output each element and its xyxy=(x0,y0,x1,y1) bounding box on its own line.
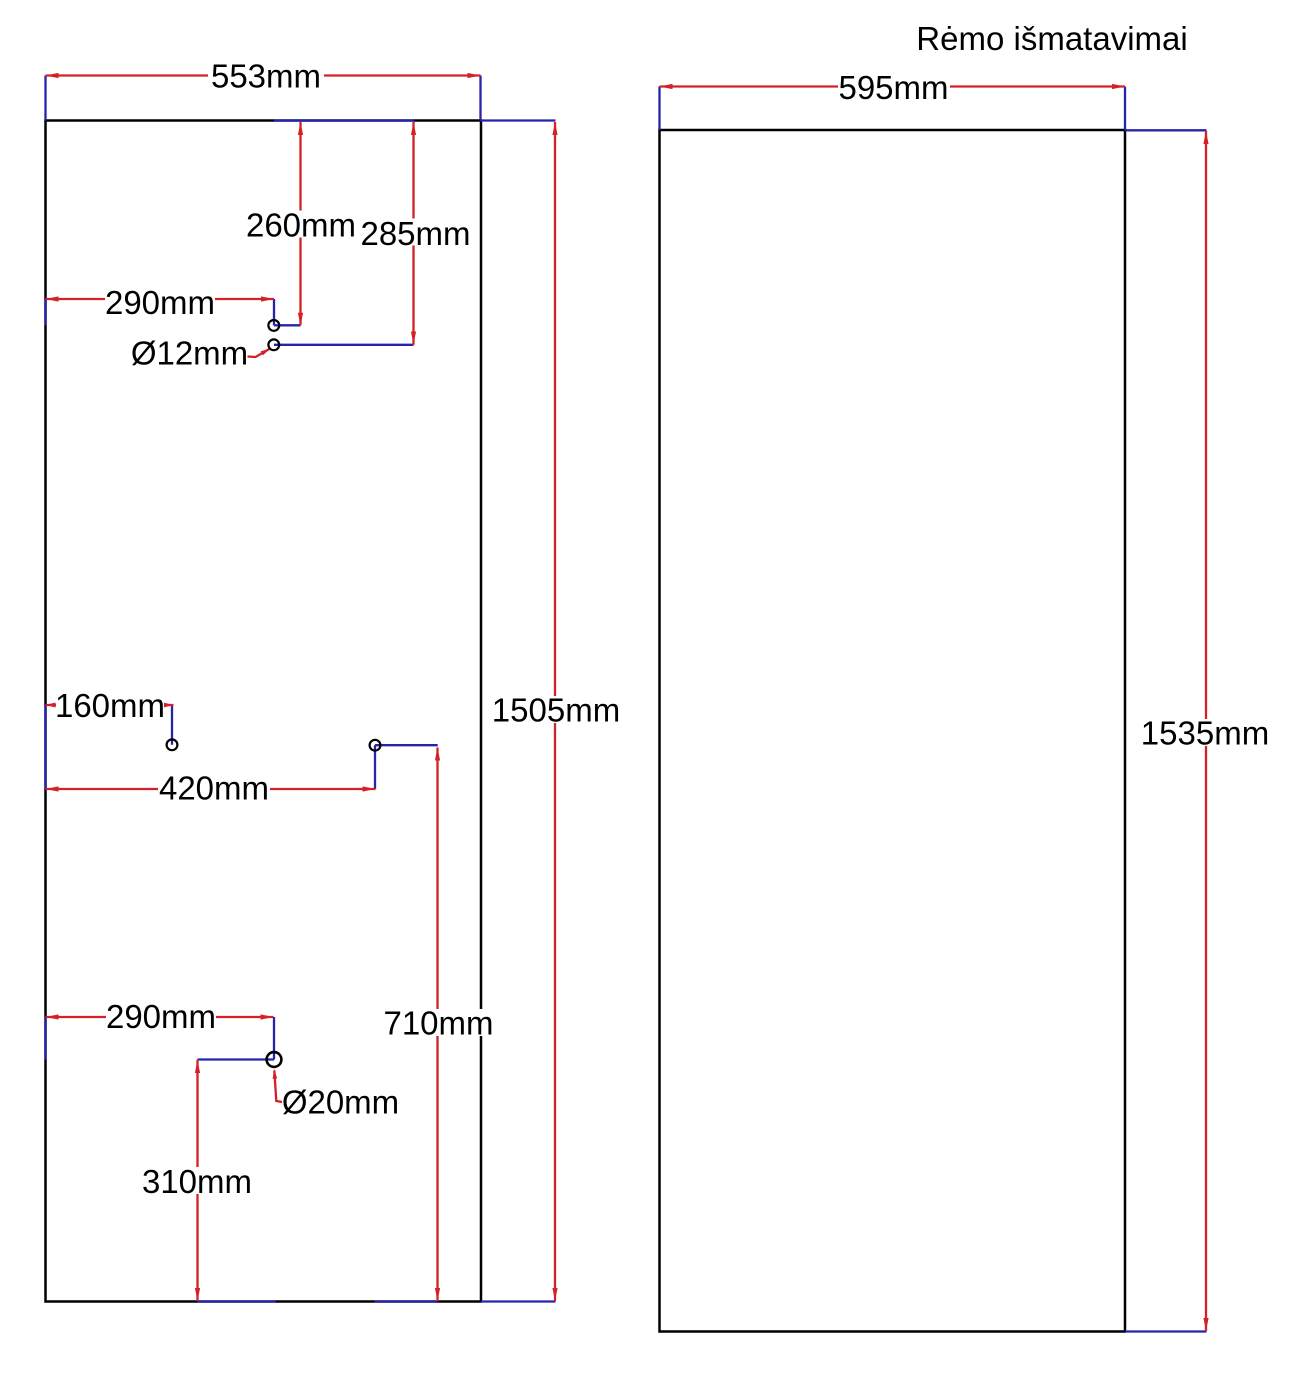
svg-text:290mm: 290mm xyxy=(105,284,215,321)
svg-text:420mm: 420mm xyxy=(159,770,269,807)
svg-text:Rėmo išmatavimai: Rėmo išmatavimai xyxy=(916,20,1187,57)
svg-text:Ø12mm: Ø12mm xyxy=(131,335,248,372)
svg-text:1535mm: 1535mm xyxy=(1141,715,1269,752)
svg-text:1505mm: 1505mm xyxy=(492,692,620,729)
svg-text:290mm: 290mm xyxy=(106,998,216,1035)
svg-text:260mm: 260mm xyxy=(246,207,356,244)
svg-text:710mm: 710mm xyxy=(383,1005,493,1042)
svg-text:Ø20mm: Ø20mm xyxy=(282,1084,399,1121)
svg-text:310mm: 310mm xyxy=(142,1163,252,1200)
svg-text:595mm: 595mm xyxy=(838,69,948,106)
svg-text:553mm: 553mm xyxy=(211,58,321,95)
svg-text:160mm: 160mm xyxy=(55,687,165,724)
svg-text:285mm: 285mm xyxy=(360,215,470,252)
